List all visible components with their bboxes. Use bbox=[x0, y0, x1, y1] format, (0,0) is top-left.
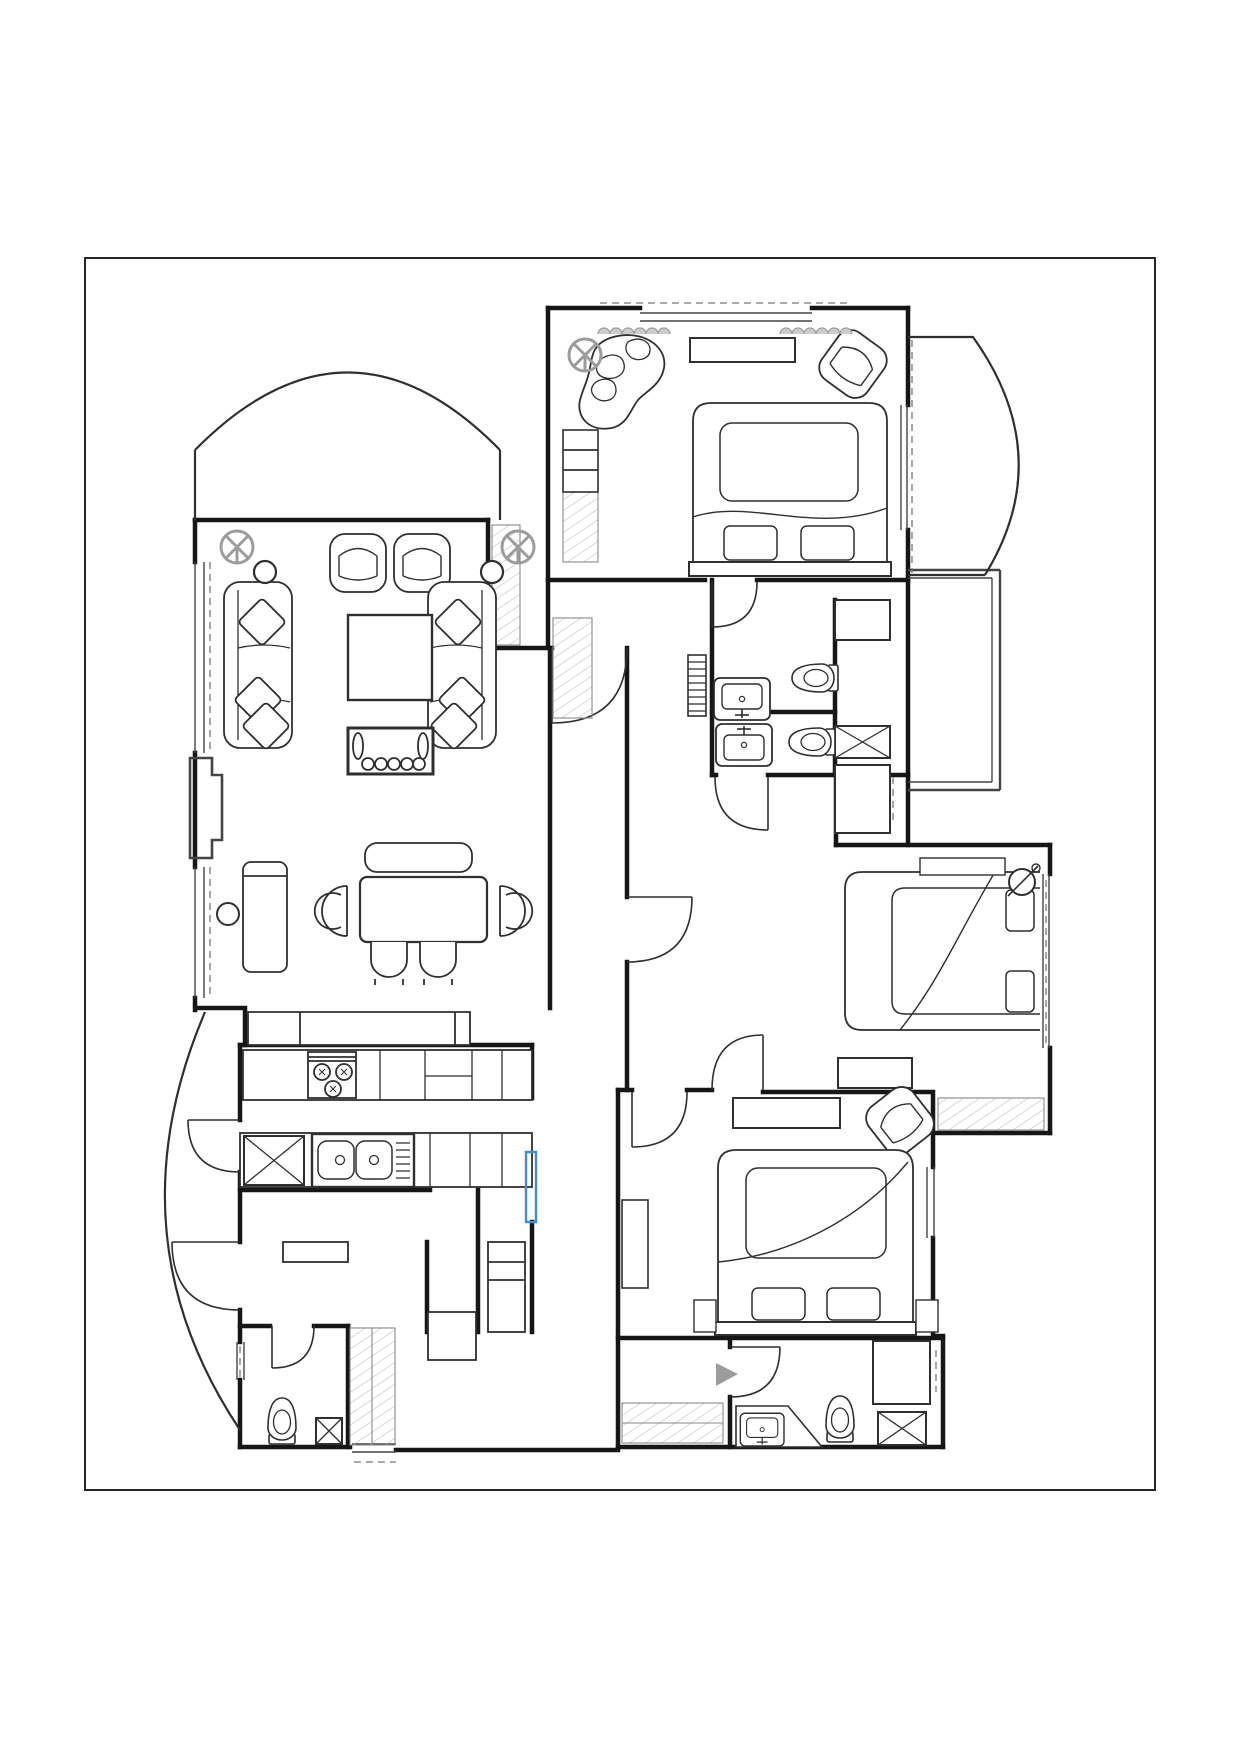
pillow bbox=[752, 1288, 805, 1320]
toilet bbox=[268, 1398, 296, 1444]
double-sink bbox=[312, 1134, 414, 1187]
wall-sconce bbox=[254, 561, 276, 583]
x-box bbox=[835, 726, 890, 758]
toilet bbox=[792, 664, 838, 692]
dresser bbox=[690, 338, 795, 362]
headboard bbox=[689, 562, 891, 576]
x-box bbox=[878, 1412, 926, 1445]
closet-hatched bbox=[553, 618, 592, 718]
tv-console bbox=[348, 728, 433, 774]
toilet bbox=[789, 728, 835, 756]
shelf-column bbox=[488, 1242, 525, 1332]
bed-double bbox=[845, 872, 1040, 1030]
dresser bbox=[733, 1098, 840, 1128]
toilet bbox=[826, 1396, 854, 1442]
closet-hatched bbox=[563, 492, 598, 562]
nightstand bbox=[916, 1300, 938, 1332]
radiator bbox=[688, 655, 706, 716]
window-ledge-hatched bbox=[938, 1098, 1044, 1130]
wardrobe-column bbox=[563, 430, 598, 492]
washbasin bbox=[716, 724, 772, 766]
nightstand bbox=[694, 1300, 716, 1332]
armchair bbox=[330, 534, 386, 592]
pillow bbox=[827, 1288, 880, 1320]
low-cabinet bbox=[838, 1058, 912, 1088]
drawing-sheet bbox=[0, 0, 1240, 1755]
worktable bbox=[283, 1242, 348, 1262]
stool bbox=[217, 903, 239, 925]
washbasin bbox=[714, 678, 770, 720]
counter-upper bbox=[243, 1050, 532, 1100]
nightstand-strip bbox=[920, 858, 1005, 875]
pillow bbox=[724, 526, 777, 560]
dining-table bbox=[360, 877, 487, 942]
kitchen-peninsula bbox=[248, 1012, 470, 1045]
pillow bbox=[801, 526, 854, 560]
x-box bbox=[244, 1136, 304, 1185]
pillow bbox=[1006, 890, 1034, 931]
floor-plan bbox=[0, 0, 1240, 1755]
bed-double bbox=[715, 1150, 916, 1335]
shaft bbox=[835, 765, 890, 833]
pillow bbox=[1006, 971, 1034, 1012]
sofa-left bbox=[224, 582, 292, 750]
sideboard bbox=[243, 862, 287, 972]
stove bbox=[308, 1052, 356, 1098]
shaft bbox=[835, 600, 890, 640]
dining-bench bbox=[365, 843, 472, 872]
laundry-box bbox=[428, 1312, 476, 1360]
sofa-right bbox=[428, 582, 496, 750]
shaft bbox=[873, 1341, 930, 1404]
wall-sconce bbox=[481, 561, 503, 583]
headboard bbox=[715, 1322, 916, 1335]
washbasin bbox=[740, 1413, 784, 1446]
bed-double bbox=[689, 403, 891, 576]
wall-shelf bbox=[622, 1200, 648, 1288]
coffee-table bbox=[348, 615, 432, 700]
x-box bbox=[316, 1418, 342, 1444]
